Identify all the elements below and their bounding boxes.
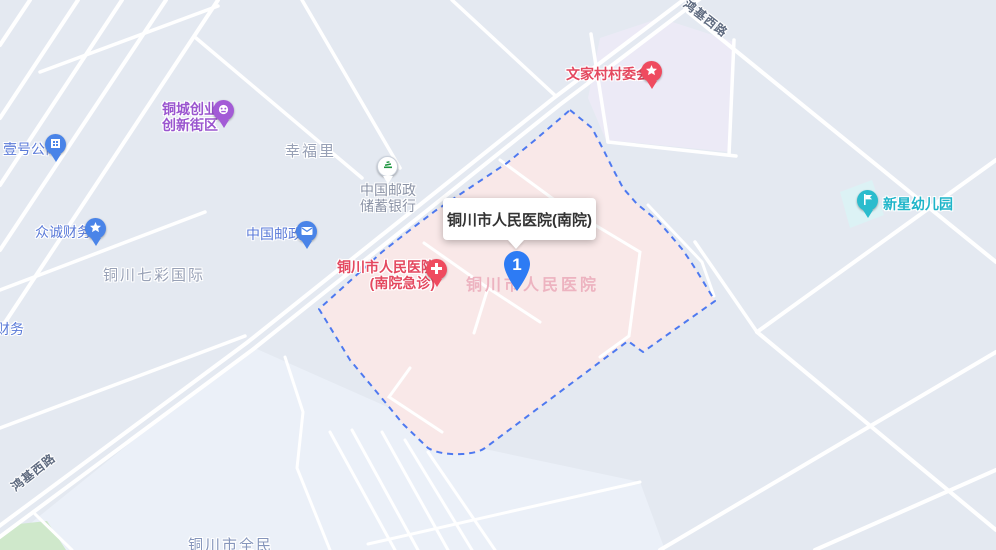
building-icon	[50, 136, 61, 154]
poi-label-hospital-emergency[interactable]: 铜川市人民医院 (南院急诊)	[337, 259, 435, 291]
poi-marker-xinxing-kindergarten[interactable]	[857, 190, 879, 218]
flag-icon	[863, 192, 873, 210]
star-icon	[646, 63, 657, 81]
highlight-area-name: 铜川市人民医院	[466, 278, 599, 294]
tooltip-title: 铜川市人民医院(南院)	[447, 209, 592, 230]
selected-marker-1[interactable]: 1	[503, 250, 531, 297]
poi-label-line1: 铜川市人民医院	[337, 259, 435, 275]
badge-icon	[218, 102, 229, 120]
road-label-clip: 鸿基西路	[660, 0, 756, 40]
envelope-icon	[301, 223, 313, 241]
result-tooltip[interactable]: 铜川市人民医院(南院)	[443, 198, 596, 240]
poi-marker-yihao-apartment[interactable]	[45, 134, 67, 162]
map-canvas[interactable]: 鸿基西路 鸿基西路 幸福里 铜川七彩国际 铜川市全民 铜川市人民医院 壹号公寓 …	[0, 0, 996, 550]
medical-cross-icon	[431, 261, 442, 279]
poi-label-zhongcheng-finance[interactable]: 众诚财务	[35, 224, 91, 240]
tooltip-pointer	[508, 240, 524, 249]
road-label-hongji-top: 鸿基西路	[680, 0, 731, 40]
poi-label-xinxing-kindergarten[interactable]: 新星幼儿园	[883, 196, 953, 212]
poi-marker-zhongcheng-finance[interactable]	[85, 218, 107, 246]
poi-label-china-post[interactable]: 中国邮政	[246, 226, 302, 242]
poi-label-line2: 储蓄银行	[360, 198, 416, 214]
area-label-xingfuli: 幸福里	[285, 144, 336, 160]
poi-label-line1: 中国邮政	[360, 182, 416, 198]
poi-marker-china-post-bank[interactable]	[377, 156, 399, 184]
area-label-qicai-international: 铜川七彩国际	[103, 268, 205, 284]
star-icon	[90, 220, 101, 238]
poi-label-line1: 铜城创业	[162, 101, 218, 117]
poi-marker-hospital-emergency[interactable]	[426, 259, 448, 287]
poi-label-china-post-bank[interactable]: 中国邮政 储蓄银行	[360, 182, 416, 214]
poi-label-caiwu-partial[interactable]: 财务	[0, 321, 24, 337]
poi-marker-wenjiacun-committee[interactable]	[641, 61, 663, 89]
poi-marker-china-post[interactable]	[296, 221, 318, 249]
poi-label-line2: 创新街区	[162, 117, 218, 133]
poi-marker-tongcheng-innovation[interactable]	[213, 100, 235, 128]
area-label-quanmin: 铜川市全民	[188, 538, 273, 550]
poi-label-tongcheng-innovation[interactable]: 铜城创业 创新街区	[162, 101, 218, 133]
marker-number: 1	[512, 255, 521, 274]
postal-savings-icon	[382, 158, 394, 176]
poi-label-wenjiacun-committee[interactable]: 文家村村委会	[566, 66, 650, 82]
poi-label-line2: (南院急诊)	[337, 275, 435, 291]
